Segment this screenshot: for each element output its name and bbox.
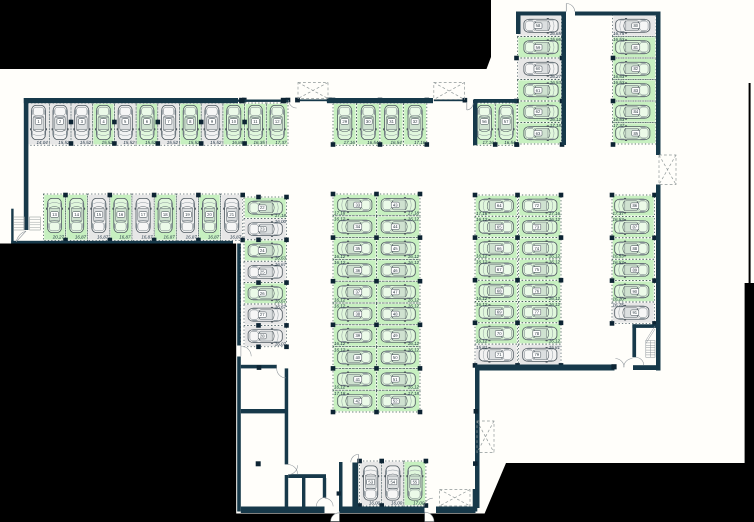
svg-text:75: 75 [534,267,539,272]
svg-text:16,00: 16,00 [391,501,403,506]
svg-text:16,12: 16,12 [408,298,420,303]
svg-text:12: 12 [275,119,280,124]
svg-text:16,12: 16,12 [334,298,346,303]
svg-text:16,12: 16,12 [549,260,561,265]
svg-text:17,16: 17,16 [414,140,426,145]
svg-text:59: 59 [536,45,541,50]
svg-text:86: 86 [632,203,637,208]
svg-text:67: 67 [497,267,502,272]
svg-text:37: 37 [355,290,360,295]
svg-text:80: 80 [633,23,638,28]
svg-text:25: 25 [260,269,265,274]
svg-text:42: 42 [355,399,360,404]
svg-text:65: 65 [497,225,502,230]
svg-text:16,75: 16,75 [613,303,625,308]
svg-text:16,12: 16,12 [408,260,420,265]
svg-text:17,18: 17,18 [334,210,346,215]
svg-text:16,53: 16,53 [613,254,625,259]
svg-text:17,16: 17,16 [476,211,488,216]
svg-text:21: 21 [229,212,234,217]
svg-text:16,53: 16,53 [613,80,625,85]
svg-text:16,12: 16,12 [408,347,420,352]
svg-text:15,52: 15,52 [188,140,200,145]
svg-text:16,20: 16,20 [613,297,625,302]
svg-text:22: 22 [260,205,265,210]
svg-text:16,12: 16,12 [476,296,488,301]
svg-text:51: 51 [393,377,398,382]
svg-text:16,87: 16,87 [230,235,242,240]
svg-text:15,52: 15,52 [167,140,179,145]
svg-text:11: 11 [253,119,258,124]
svg-text:17,18: 17,18 [408,391,420,396]
svg-text:16,12: 16,12 [334,347,346,352]
svg-text:35: 35 [355,246,360,251]
svg-text:68: 68 [497,288,502,293]
svg-text:16,75: 16,75 [613,31,625,36]
svg-text:36: 36 [355,268,360,273]
svg-text:77: 77 [534,310,539,315]
svg-text:16,54: 16,54 [391,140,403,145]
svg-text:16,53: 16,53 [613,217,625,222]
svg-text:58: 58 [536,23,541,28]
svg-text:64: 64 [497,203,502,208]
svg-text:15,81: 15,81 [476,345,488,350]
svg-text:16,12: 16,12 [408,385,420,390]
svg-text:79: 79 [534,352,539,357]
svg-text:56: 56 [482,119,487,124]
svg-text:41: 41 [355,377,360,382]
svg-text:16,67: 16,67 [275,262,287,267]
svg-text:40: 40 [355,355,360,360]
svg-text:82: 82 [633,66,638,71]
svg-text:16,12: 16,12 [549,217,561,222]
svg-text:38: 38 [355,311,360,316]
svg-text:50: 50 [393,355,398,360]
svg-text:16,12: 16,12 [476,253,488,258]
svg-text:16,12: 16,12 [334,254,346,259]
svg-text:16,87: 16,87 [186,235,198,240]
svg-text:69: 69 [497,310,502,315]
svg-text:17,18: 17,18 [550,123,562,128]
svg-text:16,27: 16,27 [550,74,562,79]
svg-text:15,52: 15,52 [145,140,157,145]
svg-text:73: 73 [534,225,539,230]
svg-text:17,00: 17,00 [413,501,425,506]
svg-text:31: 31 [389,119,394,124]
svg-text:43: 43 [393,202,398,207]
svg-text:55: 55 [413,480,418,485]
svg-text:14,04: 14,04 [37,140,49,145]
svg-text:16,87: 16,87 [164,235,176,240]
svg-text:10: 10 [231,119,236,124]
svg-text:16,12: 16,12 [476,260,488,265]
svg-text:46: 46 [393,268,398,273]
svg-text:13: 13 [52,212,57,217]
svg-text:23: 23 [260,227,265,232]
svg-text:84: 84 [633,109,638,114]
svg-text:16,35: 16,35 [254,140,266,145]
svg-text:19: 19 [185,212,190,217]
svg-text:49: 49 [393,333,398,338]
svg-text:16,12: 16,12 [476,339,488,344]
svg-text:81: 81 [633,45,638,50]
svg-text:29: 29 [342,119,347,124]
svg-text:16,86: 16,86 [232,140,244,145]
svg-text:16,12: 16,12 [549,296,561,301]
svg-text:16,12: 16,12 [549,302,561,307]
svg-text:71: 71 [497,352,502,357]
svg-text:16,12: 16,12 [549,253,561,258]
svg-text:15,52: 15,52 [58,140,70,145]
svg-text:16,12: 16,12 [476,217,488,222]
svg-text:17,16: 17,16 [549,211,561,216]
svg-text:39: 39 [355,333,360,338]
svg-text:15,66: 15,66 [550,37,562,42]
svg-text:47: 47 [393,290,398,295]
svg-text:52: 52 [393,399,398,404]
svg-text:16,12: 16,12 [476,302,488,307]
svg-text:16,12: 16,12 [334,304,346,309]
svg-text:85: 85 [633,131,638,136]
svg-text:63: 63 [536,131,541,136]
svg-text:16,12: 16,12 [549,339,561,344]
svg-text:20: 20 [207,212,212,217]
svg-text:70: 70 [497,331,502,336]
svg-text:48: 48 [393,311,398,316]
svg-text:17,18: 17,18 [334,391,346,396]
svg-text:16,54: 16,54 [367,140,379,145]
svg-text:62: 62 [536,109,541,114]
svg-text:16,53: 16,53 [613,37,625,42]
svg-text:16,12: 16,12 [408,217,420,222]
svg-text:30: 30 [366,119,371,124]
svg-text:17: 17 [141,212,146,217]
svg-text:16,87: 16,87 [141,235,153,240]
svg-text:33: 33 [355,202,360,207]
svg-text:16,87: 16,87 [119,235,131,240]
svg-text:16,12: 16,12 [550,117,562,122]
svg-text:16,12: 16,12 [334,260,346,265]
svg-text:78: 78 [534,331,539,336]
svg-text:27: 27 [260,312,265,317]
svg-text:16,87: 16,87 [97,235,109,240]
svg-text:17,16: 17,16 [483,140,495,145]
svg-text:17,16: 17,16 [344,140,356,145]
svg-text:91: 91 [632,310,637,315]
svg-text:16,53: 16,53 [613,74,625,79]
svg-text:83: 83 [633,88,638,93]
svg-text:16,12: 16,12 [408,254,420,259]
svg-text:16,12: 16,12 [334,217,346,222]
svg-text:16,12: 16,12 [334,341,346,346]
svg-text:20,27: 20,27 [52,235,65,240]
svg-text:17,18: 17,18 [408,210,420,215]
svg-text:16,53: 16,53 [613,260,625,265]
svg-text:16,12: 16,12 [408,341,420,346]
svg-text:17,18: 17,18 [275,213,287,218]
svg-text:72: 72 [534,203,539,208]
svg-text:26: 26 [260,291,265,296]
svg-text:16,87: 16,87 [208,235,220,240]
svg-text:61: 61 [536,88,541,93]
svg-text:16,63: 16,63 [275,256,287,261]
svg-text:16,53: 16,53 [613,117,625,122]
svg-text:53: 53 [368,480,373,485]
svg-text:16,67: 16,67 [275,305,287,310]
svg-text:15,52: 15,52 [80,140,92,145]
svg-text:17,37: 17,37 [613,211,625,216]
svg-text:16,67: 16,67 [275,299,287,304]
svg-text:90: 90 [632,289,637,294]
svg-text:16,12: 16,12 [334,385,346,390]
svg-text:16: 16 [119,212,124,217]
svg-text:18: 18 [163,212,168,217]
svg-text:16,87: 16,87 [75,235,87,240]
svg-text:66: 66 [497,246,502,251]
svg-text:54: 54 [390,480,395,485]
svg-text:28: 28 [260,334,265,339]
svg-text:15,52: 15,52 [123,140,135,145]
svg-text:15,52: 15,52 [210,140,222,145]
svg-text:16,65: 16,65 [550,31,562,36]
svg-text:88: 88 [632,246,637,251]
svg-text:74: 74 [534,246,539,251]
svg-text:16,00: 16,00 [369,501,381,506]
svg-text:14: 14 [74,212,79,217]
svg-text:34: 34 [355,224,360,229]
svg-text:15,81: 15,81 [549,345,561,350]
svg-text:60: 60 [536,66,541,71]
svg-text:16,00: 16,00 [275,219,287,224]
svg-text:57: 57 [504,119,509,124]
svg-text:44: 44 [393,224,398,229]
svg-text:24: 24 [260,248,265,253]
svg-text:15: 15 [96,212,101,217]
svg-text:15,52: 15,52 [102,140,114,145]
svg-text:17,37: 17,37 [275,140,287,145]
svg-text:45: 45 [393,246,398,251]
svg-text:76: 76 [534,288,539,293]
svg-text:89: 89 [632,267,637,272]
svg-text:87: 87 [632,225,637,230]
svg-text:16,53: 16,53 [550,80,562,85]
svg-text:16,12: 16,12 [408,304,420,309]
svg-text:17,37: 17,37 [613,123,625,128]
svg-text:32: 32 [413,119,418,124]
